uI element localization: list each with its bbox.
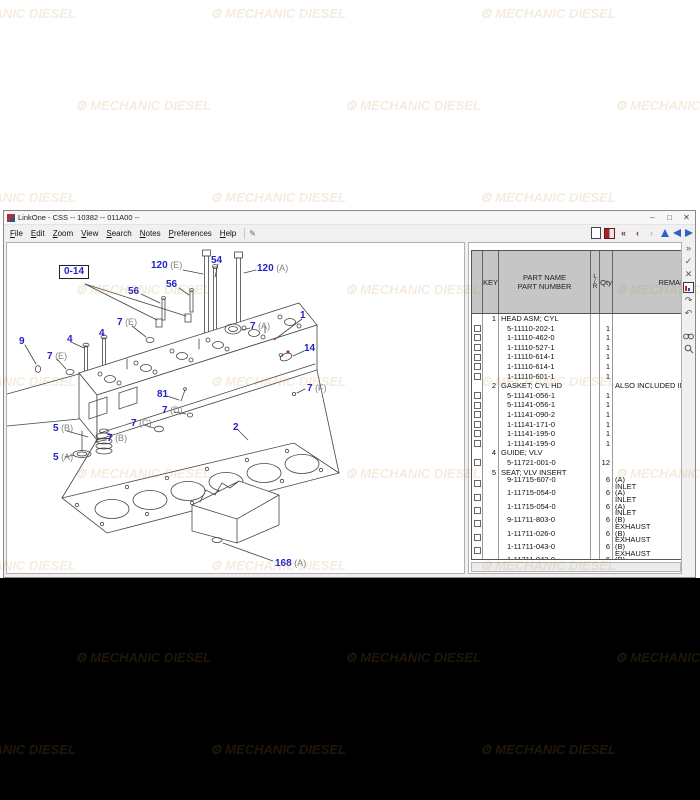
- table-cell: [591, 410, 600, 420]
- part-callout[interactable]: 120 (E): [151, 261, 182, 271]
- table-cell: [613, 352, 681, 362]
- row-checkbox[interactable]: [474, 480, 481, 487]
- table-row[interactable]: 4GUIDE; VLV: [472, 448, 681, 458]
- part-callout[interactable]: 168 (A): [275, 559, 306, 569]
- table-cell: [613, 391, 681, 401]
- minimize-button[interactable]: –: [644, 211, 661, 224]
- content-area: 0-14120 (E)54120 (A)56567 (E)17 (A)9447 …: [4, 240, 695, 577]
- menu-zoom[interactable]: Zoom: [49, 228, 77, 239]
- part-callout[interactable]: 54: [211, 256, 222, 266]
- maximize-button[interactable]: □: [661, 211, 678, 224]
- menu-view[interactable]: View: [77, 228, 102, 239]
- table-cell: [591, 314, 600, 324]
- row-checkbox[interactable]: [474, 547, 481, 554]
- checkbox-cell: [472, 381, 483, 391]
- table-row[interactable]: 1-11711-026-06(B)EXHAUST: [472, 531, 681, 544]
- table-cell: [591, 517, 600, 530]
- menu-separator: [244, 228, 245, 239]
- table-cell: [483, 544, 499, 557]
- table-cell: 6: [600, 557, 613, 559]
- parts-table-body: 1HEAD ASM; CYL5-11110-202-111-11110-462-…: [472, 314, 681, 559]
- part-callout[interactable]: 0-14: [59, 265, 89, 279]
- table-cell: [600, 448, 613, 458]
- table-cell: HEAD ASM; CYL: [499, 314, 591, 324]
- back-arrow-icon[interactable]: [673, 229, 681, 237]
- row-checkbox[interactable]: [474, 354, 481, 361]
- table-cell: 1-11110-601-1: [499, 372, 591, 382]
- header-key: KEY: [483, 251, 499, 313]
- part-callout[interactable]: 9: [19, 337, 25, 347]
- part-callout[interactable]: 7 (E): [117, 318, 137, 328]
- table-cell: 1: [600, 343, 613, 353]
- row-checkbox[interactable]: [474, 334, 481, 341]
- table-row[interactable]: 5-11110-202-11: [472, 324, 681, 334]
- table-cell: [613, 314, 681, 324]
- table-cell: [483, 531, 499, 544]
- previous-page-icon[interactable]: ‹: [631, 227, 644, 239]
- header-checkbox-column: [472, 251, 483, 313]
- go-icon[interactable]: »: [683, 242, 695, 254]
- table-cell: [591, 391, 600, 401]
- table-cell: [613, 448, 681, 458]
- table-cell: 1: [600, 391, 613, 401]
- parts-table: KEY PART NAME PART NUMBER L/R Qty REMARK…: [471, 250, 681, 560]
- table-cell: [483, 324, 499, 334]
- watermark: ⚙ MECHANIC DIESEL: [75, 98, 211, 114]
- row-checkbox[interactable]: [474, 440, 481, 447]
- app-window: LinkOne - CSS -- 10382 -- 011A00 -- – □ …: [3, 210, 696, 578]
- part-callout[interactable]: 56: [128, 287, 139, 297]
- checkbox-cell: [472, 324, 483, 334]
- table-row[interactable]: 1-11141-195-01: [472, 439, 681, 449]
- table-cell: [613, 439, 681, 449]
- table-row[interactable]: 1-11110-614-11: [472, 362, 681, 372]
- table-row[interactable]: 1-11141-171-01: [472, 420, 681, 430]
- table-row[interactable]: 1-11715-054-06(A)INLET: [472, 504, 681, 517]
- table-cell: [613, 362, 681, 372]
- checkbox-cell: [472, 372, 483, 382]
- table-cell: 1: [600, 333, 613, 343]
- table-cell: 4: [483, 448, 499, 458]
- table-cell: 1: [600, 429, 613, 439]
- checkbox-cell: [472, 531, 483, 544]
- table-cell: [483, 429, 499, 439]
- table-cell: 6: [600, 504, 613, 517]
- header-part-name: PART NAME PART NUMBER: [499, 251, 591, 313]
- table-cell: (B)EXHAUST: [613, 544, 681, 557]
- menu-edit[interactable]: Edit: [27, 228, 49, 239]
- header-remarks: REMARKS: [613, 251, 681, 313]
- table-cell: [591, 458, 600, 468]
- table-row[interactable]: 5-11721-001-012: [472, 458, 681, 468]
- table-cell: [591, 448, 600, 458]
- first-page-icon[interactable]: «: [617, 227, 630, 239]
- table-cell: 1-11110-527-1: [499, 343, 591, 353]
- table-cell: GASKET; CYL HD: [499, 381, 591, 391]
- table-cell: [591, 372, 600, 382]
- table-row[interactable]: 9-11711-803-06(B)EXHAUST: [472, 517, 681, 530]
- black-band: [0, 578, 700, 800]
- table-cell: GUIDE; VLV: [499, 448, 591, 458]
- table-cell: [613, 420, 681, 430]
- checkbox-cell: [472, 544, 483, 557]
- table-cell: [483, 439, 499, 449]
- table-cell: [613, 343, 681, 353]
- table-cell: [483, 420, 499, 430]
- undo-arrow-icon[interactable]: ↶: [683, 307, 695, 319]
- table-cell: [613, 468, 681, 478]
- table-row[interactable]: 1-11711-043-06(B)EXHAUST: [472, 557, 681, 559]
- table-cell: 1-11141-090-2: [499, 410, 591, 420]
- table-row[interactable]: 1-11141-090-21: [472, 410, 681, 420]
- part-callout[interactable]: 81: [157, 390, 168, 400]
- part-callout[interactable]: 7 (B): [107, 434, 127, 444]
- watermark: ⚙ MECHANIC DIESEL: [480, 6, 616, 22]
- table-cell: 5-11721-001-0: [499, 458, 591, 468]
- table-cell: [483, 490, 499, 503]
- table-cell: [591, 557, 600, 559]
- watermark: ⚙ MECHANIC DIESEL: [0, 6, 76, 22]
- table-cell: 1-11110-462-0: [499, 333, 591, 343]
- checkbox-cell: [472, 429, 483, 439]
- row-checkbox[interactable]: [474, 421, 481, 428]
- annotate-icon[interactable]: ✎: [249, 229, 256, 238]
- table-cell: [591, 544, 600, 557]
- table-row[interactable]: 1HEAD ASM; CYL: [472, 314, 681, 324]
- checkbox-cell: [472, 458, 483, 468]
- row-checkbox[interactable]: [474, 392, 481, 399]
- cancel-x-icon[interactable]: ✕: [683, 268, 695, 280]
- table-cell: 1: [600, 352, 613, 362]
- part-callout-layer: 0-14120 (E)54120 (A)56567 (E)17 (A)9447 …: [7, 243, 464, 573]
- watermark: ⚙ MECHANIC DIESEL: [615, 98, 700, 114]
- menu-preferences[interactable]: Preferences: [165, 228, 216, 239]
- checkbox-cell: [472, 448, 483, 458]
- table-cell: (B)EXHAUST: [613, 531, 681, 544]
- horizontal-scrollbar[interactable]: [471, 562, 681, 572]
- table-cell: 6: [600, 544, 613, 557]
- page-view-icon[interactable]: [589, 227, 602, 239]
- checkbox-cell: [472, 391, 483, 401]
- table-cell: [613, 458, 681, 468]
- menu-help[interactable]: Help: [216, 228, 240, 239]
- app-icon: [7, 214, 15, 222]
- part-callout[interactable]: 7 (E): [47, 352, 67, 362]
- table-cell: [483, 333, 499, 343]
- binoculars-find-icon[interactable]: [683, 330, 695, 342]
- table-cell: 1-11110-614-1: [499, 352, 591, 362]
- redo-arrow-icon[interactable]: ↷: [683, 294, 695, 306]
- checkbox-cell: [472, 477, 483, 490]
- table-row[interactable]: 1-11141-195-01: [472, 429, 681, 439]
- part-callout[interactable]: 120 (A): [257, 264, 288, 274]
- table-cell: 12: [600, 458, 613, 468]
- next-page-icon[interactable]: ›: [645, 227, 658, 239]
- menu-bar: File Edit Zoom View Search Notes Prefere…: [4, 225, 695, 241]
- row-checkbox[interactable]: [474, 344, 481, 351]
- table-cell: 1-11715-054-0: [499, 490, 591, 503]
- table-cell: 1-11711-043-0: [499, 544, 591, 557]
- table-cell: 1: [600, 362, 613, 372]
- part-callout[interactable]: 1: [300, 311, 306, 321]
- window-title: LinkOne - CSS -- 10382 -- 011A00 --: [18, 213, 644, 222]
- table-cell: 1-11110-614-1: [499, 362, 591, 372]
- table-cell: 5-11141-056-1: [499, 391, 591, 401]
- table-cell: 9-11715-607-0: [499, 477, 591, 490]
- part-callout[interactable]: 7 (C): [131, 419, 152, 429]
- table-cell: [483, 400, 499, 410]
- checkbox-cell: [472, 400, 483, 410]
- table-cell: SEAT; VLV INSERT: [499, 468, 591, 478]
- part-callout[interactable]: 7 (F): [307, 384, 327, 394]
- watermark: ⚙ MECHANIC DIESEL: [0, 190, 76, 206]
- table-cell: [483, 352, 499, 362]
- checkbox-cell: [472, 314, 483, 324]
- table-cell: 1-11141-195-0: [499, 439, 591, 449]
- table-cell: 1: [600, 372, 613, 382]
- row-checkbox[interactable]: [474, 534, 481, 541]
- table-cell: 6: [600, 531, 613, 544]
- table-cell: 9-11711-803-0: [499, 517, 591, 530]
- watermark: ⚙ MECHANIC DIESEL: [345, 98, 481, 114]
- table-row[interactable]: 1-11110-614-11: [472, 352, 681, 362]
- table-cell: 1-11711-026-0: [499, 531, 591, 544]
- parts-panel: KEY PART NAME PART NUMBER L/R Qty REMARK…: [468, 242, 682, 574]
- row-checkbox[interactable]: [474, 325, 481, 332]
- table-row[interactable]: 5SEAT; VLV INSERT: [472, 468, 681, 478]
- table-cell: [600, 468, 613, 478]
- table-cell: (A)INLET: [613, 477, 681, 490]
- table-cell: [591, 333, 600, 343]
- table-cell: [600, 381, 613, 391]
- open-book-icon[interactable]: [603, 227, 616, 239]
- table-row[interactable]: 1-11715-054-06(A)INLET: [472, 490, 681, 503]
- table-cell: 5-11141-056-1: [499, 400, 591, 410]
- menu-notes[interactable]: Notes: [136, 228, 165, 239]
- table-cell: [591, 429, 600, 439]
- table-cell: [613, 410, 681, 420]
- table-cell: 1: [600, 439, 613, 449]
- part-callout[interactable]: 56: [166, 280, 177, 290]
- watermark: ⚙ MECHANIC DIESEL: [480, 190, 616, 206]
- table-row[interactable]: 5-11141-056-11: [472, 391, 681, 401]
- table-cell: 1-11141-171-0: [499, 420, 591, 430]
- checkbox-cell: [472, 343, 483, 353]
- table-cell: 1: [600, 400, 613, 410]
- table-cell: [613, 333, 681, 343]
- row-checkbox[interactable]: [474, 373, 481, 380]
- table-cell: [591, 490, 600, 503]
- checkbox-cell: [472, 490, 483, 503]
- table-cell: 2: [483, 381, 499, 391]
- checkbox-cell: [472, 333, 483, 343]
- table-row[interactable]: 1-11711-043-06(B)EXHAUST: [472, 544, 681, 557]
- table-cell: [591, 324, 600, 334]
- table-cell: [591, 381, 600, 391]
- forward-arrow-icon[interactable]: [685, 229, 693, 237]
- table-cell: [591, 400, 600, 410]
- table-cell: [483, 517, 499, 530]
- header-lr: L/R: [591, 251, 600, 313]
- checkbox-cell: [472, 420, 483, 430]
- table-cell: [591, 531, 600, 544]
- table-cell: (A)INLET: [613, 504, 681, 517]
- accept-check-icon[interactable]: ✓: [683, 255, 695, 267]
- table-row[interactable]: 2GASKET; CYL HDALSO INCLUDED IN G: [472, 381, 681, 391]
- row-checkbox[interactable]: [474, 507, 481, 514]
- table-cell: [613, 324, 681, 334]
- side-toolbar: » ✓ ✕ ↷ ↶: [682, 240, 695, 581]
- table-cell: ALSO INCLUDED IN G: [613, 381, 681, 391]
- part-callout[interactable]: 2: [233, 423, 239, 433]
- table-row[interactable]: 1-11110-527-11: [472, 343, 681, 353]
- table-cell: [483, 410, 499, 420]
- checkbox-cell: [472, 517, 483, 530]
- part-callout[interactable]: 14: [304, 344, 315, 354]
- checkbox-cell: [472, 557, 483, 559]
- table-row[interactable]: 5-11141-056-11: [472, 400, 681, 410]
- table-cell: [591, 362, 600, 372]
- table-cell: 1: [600, 410, 613, 420]
- table-cell: [483, 343, 499, 353]
- table-row[interactable]: 1-11110-462-01: [472, 333, 681, 343]
- part-callout[interactable]: 4: [99, 329, 105, 339]
- title-bar: LinkOne - CSS -- 10382 -- 011A00 -- – □ …: [4, 211, 695, 225]
- watermark: ⚙ MECHANIC DIESEL: [210, 190, 346, 206]
- checkbox-cell: [472, 410, 483, 420]
- table-cell: 1-11715-054-0: [499, 504, 591, 517]
- row-checkbox[interactable]: [474, 402, 481, 409]
- table-cell: 6: [600, 490, 613, 503]
- checkbox-cell: [472, 504, 483, 517]
- table-cell: [600, 314, 613, 324]
- table-cell: [591, 504, 600, 517]
- table-cell: [483, 362, 499, 372]
- table-cell: 5: [483, 468, 499, 478]
- part-callout[interactable]: 5 (A): [53, 453, 73, 463]
- part-callout[interactable]: 7 (A): [250, 322, 270, 332]
- table-cell: [483, 391, 499, 401]
- table-cell: (B)EXHAUST: [613, 557, 681, 559]
- table-cell: [591, 352, 600, 362]
- row-checkbox[interactable]: [474, 411, 481, 418]
- table-cell: [483, 477, 499, 490]
- watermark: ⚙ MECHANIC DIESEL: [210, 6, 346, 22]
- menu-search[interactable]: Search: [102, 228, 135, 239]
- table-cell: 1: [600, 420, 613, 430]
- close-button[interactable]: ✕: [678, 211, 695, 224]
- drawing-panel[interactable]: 0-14120 (E)54120 (A)56567 (E)17 (A)9447 …: [6, 242, 465, 574]
- table-cell: 1: [600, 324, 613, 334]
- table-cell: [483, 504, 499, 517]
- checkbox-cell: [472, 362, 483, 372]
- menu-file[interactable]: File: [6, 228, 27, 239]
- checkbox-cell: [472, 468, 483, 478]
- table-cell: [613, 400, 681, 410]
- table-cell: (B)EXHAUST: [613, 517, 681, 530]
- graphics-chart-icon[interactable]: [683, 281, 695, 293]
- parts-table-header: KEY PART NAME PART NUMBER L/R Qty REMARK…: [472, 251, 681, 314]
- magnifier-zoom-icon[interactable]: [683, 343, 695, 355]
- table-cell: [613, 372, 681, 382]
- table-cell: 6: [600, 477, 613, 490]
- table-cell: [591, 477, 600, 490]
- up-level-arrow-icon[interactable]: [661, 229, 669, 237]
- checkbox-cell: [472, 352, 483, 362]
- part-callout[interactable]: 5 (B): [53, 424, 73, 434]
- table-cell: [591, 420, 600, 430]
- table-row[interactable]: 9-11715-607-06(A)INLET: [472, 477, 681, 490]
- row-checkbox[interactable]: [474, 459, 481, 466]
- table-cell: [483, 458, 499, 468]
- table-cell: (A)INLET: [613, 490, 681, 503]
- row-checkbox[interactable]: [474, 363, 481, 370]
- row-checkbox[interactable]: [474, 520, 481, 527]
- table-cell: [591, 468, 600, 478]
- table-cell: 1-11711-043-0: [499, 557, 591, 559]
- row-checkbox[interactable]: [474, 494, 481, 501]
- part-callout[interactable]: 7 (D): [162, 406, 183, 416]
- table-cell: 6: [600, 517, 613, 530]
- table-cell: [483, 372, 499, 382]
- table-row[interactable]: 1-11110-601-11: [472, 372, 681, 382]
- table-cell: 1: [483, 314, 499, 324]
- table-cell: [591, 439, 600, 449]
- row-checkbox[interactable]: [474, 430, 481, 437]
- table-cell: [483, 557, 499, 559]
- table-cell: [613, 429, 681, 439]
- checkbox-cell: [472, 439, 483, 449]
- table-cell: [591, 343, 600, 353]
- table-cell: 5-11110-202-1: [499, 324, 591, 334]
- part-callout[interactable]: 4: [67, 335, 73, 345]
- header-qty: Qty: [600, 251, 613, 313]
- table-cell: 1-11141-195-0: [499, 429, 591, 439]
